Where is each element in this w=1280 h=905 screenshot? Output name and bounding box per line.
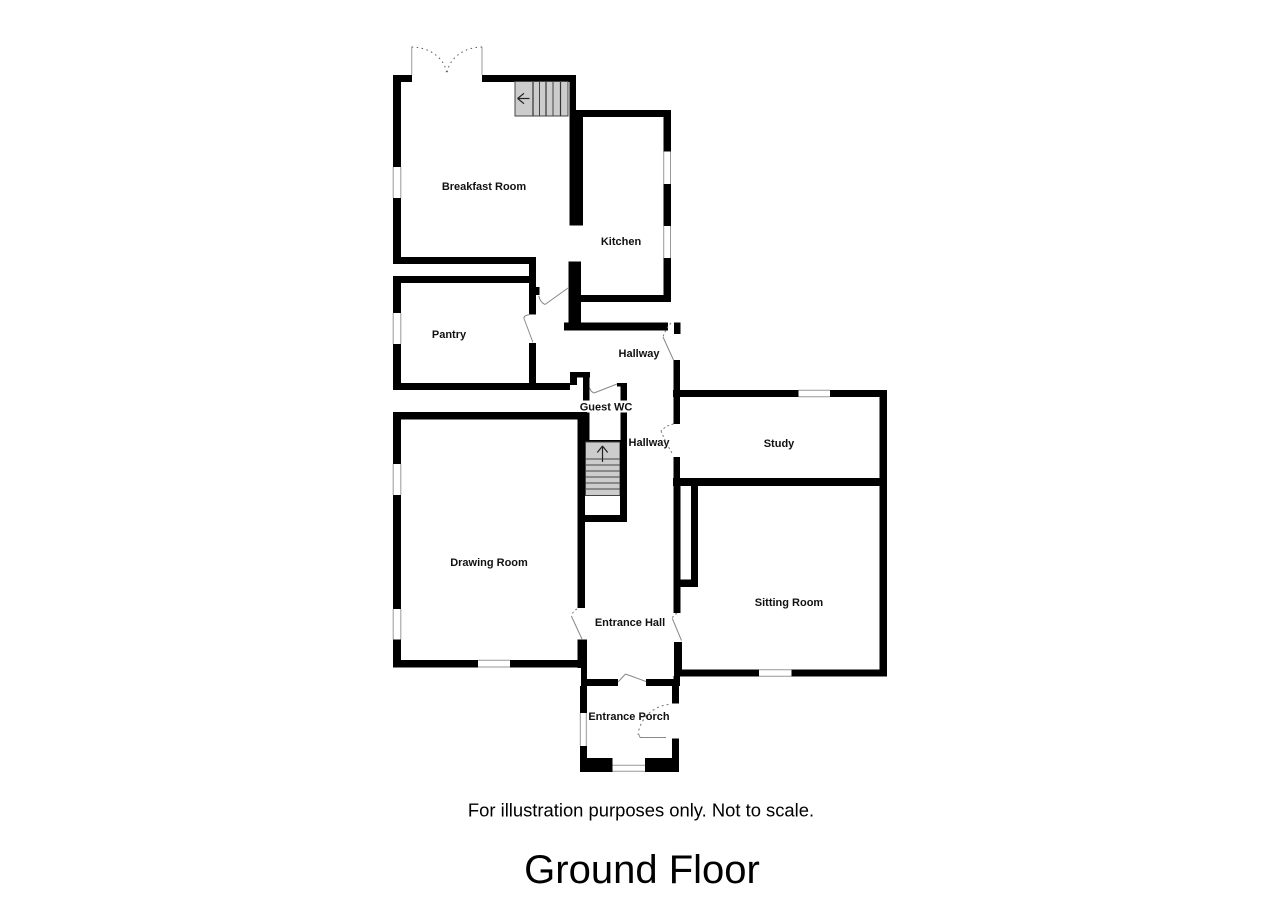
svg-text:Sitting Room: Sitting Room xyxy=(755,597,824,609)
svg-text:Guest WC: Guest WC xyxy=(580,402,633,414)
svg-text:Breakfast Room: Breakfast Room xyxy=(442,181,527,193)
svg-text:Study: Study xyxy=(764,438,795,450)
svg-text:Drawing Room: Drawing Room xyxy=(450,557,528,569)
svg-text:Hallway: Hallway xyxy=(619,348,661,360)
svg-text:Ground Floor: Ground Floor xyxy=(524,848,760,892)
svg-text:Hallway: Hallway xyxy=(629,437,671,449)
svg-text:Entrance Porch: Entrance Porch xyxy=(588,711,670,723)
svg-text:For illustration purposes only: For illustration purposes only. Not to s… xyxy=(468,800,814,821)
svg-text:Entrance Hall: Entrance Hall xyxy=(595,617,665,629)
svg-text:Pantry: Pantry xyxy=(432,329,467,341)
svg-text:Kitchen: Kitchen xyxy=(601,236,642,248)
